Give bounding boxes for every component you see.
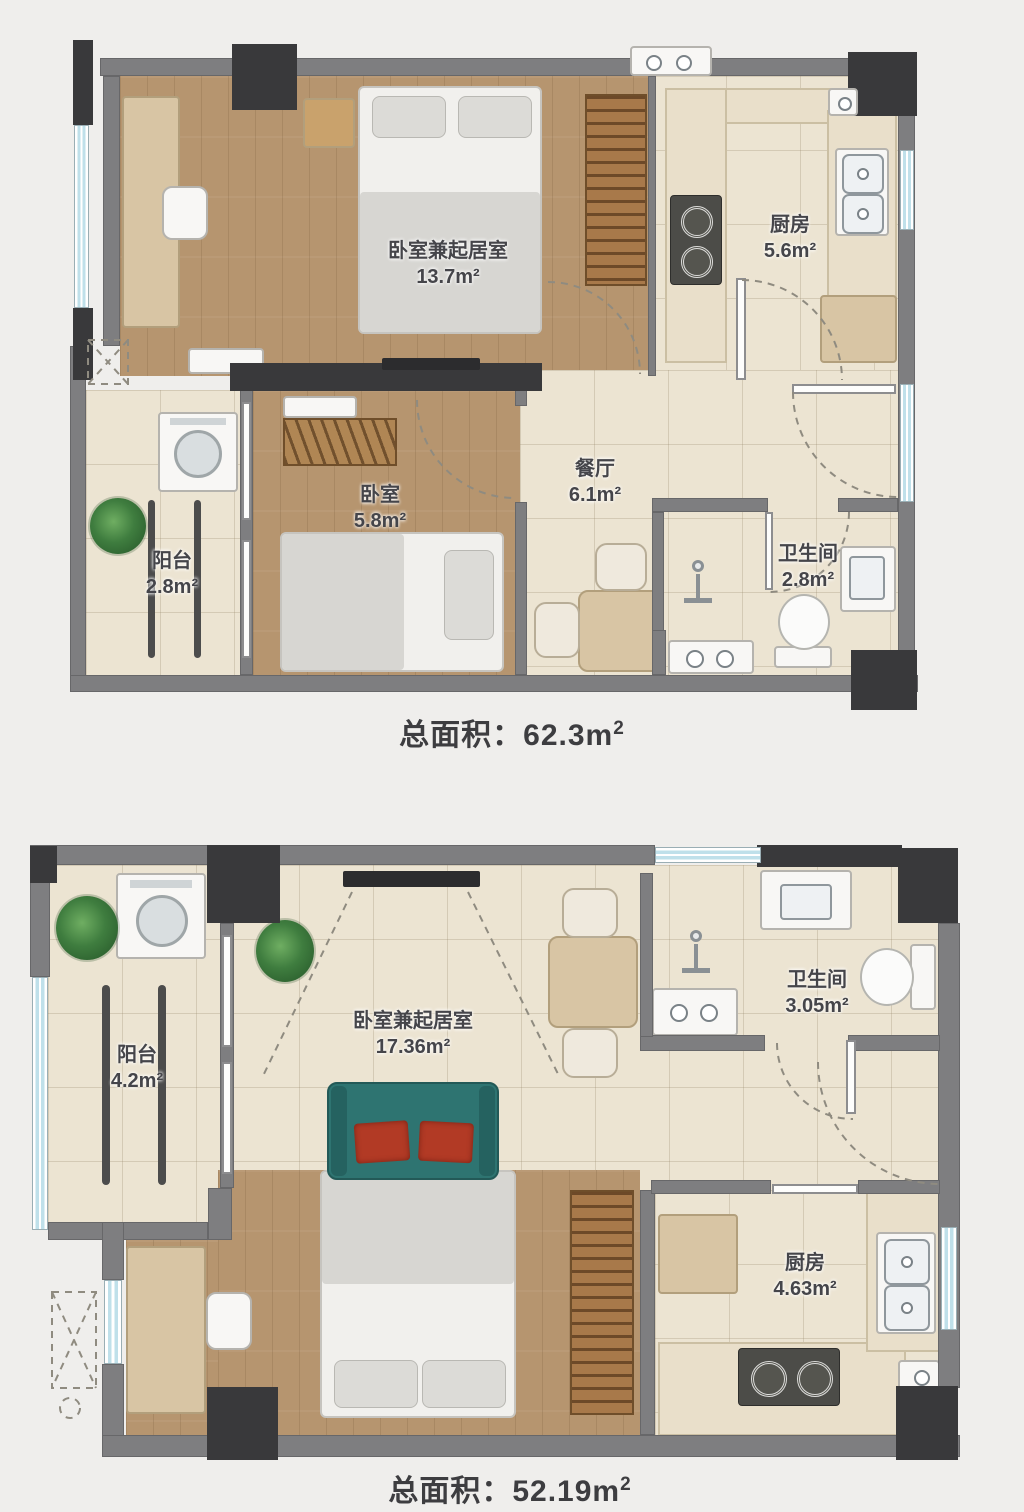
room-area: 6.1m² [545, 482, 645, 508]
p2-bath-vanity [652, 988, 738, 1036]
floorplan-page: 卧室兼起居室 13.7m² 厨房 5.6m² 餐厅 6.1m² 卧室 5.8m²… [0, 0, 1024, 1512]
p2-sink-drain-2 [901, 1302, 913, 1314]
p1-sink-bowl-1 [842, 154, 884, 194]
room-area: 17.36m² [343, 1034, 483, 1060]
p1-dining-chair-left [534, 602, 580, 658]
total-sup: 2 [620, 1474, 632, 1495]
p1-shelf [283, 418, 397, 466]
p1-wall-vent-hole [838, 97, 852, 111]
room-area: 4.2m² [87, 1068, 187, 1094]
p1-wall-bedroom2-stub [515, 390, 527, 406]
room-name: 卫生间 [748, 541, 868, 567]
total-label: 总面积： [388, 1475, 512, 1508]
p2-drain-symbol [60, 1398, 80, 1418]
p2-bed [320, 1170, 516, 1418]
p1-window-right [900, 384, 914, 502]
p2-stove-burner-2 [797, 1361, 833, 1397]
p2-wall-left-mid-2 [102, 1364, 124, 1438]
p1-wall-left-lower [70, 346, 86, 676]
p2-bath-door-leaf [846, 1040, 856, 1114]
p1-washer-panel [170, 418, 226, 425]
p2-bath-sink [760, 870, 852, 930]
p2-plant-balcony [56, 896, 118, 960]
p1-ac-unit [283, 396, 357, 418]
p2-label-bathroom: 卫生间 3.05m² [762, 967, 872, 1019]
p2-washer-panel [130, 880, 192, 888]
p1-plant [90, 498, 146, 554]
room-name: 餐厅 [545, 456, 645, 482]
total-value: 62.3m [523, 719, 613, 752]
p2-bed-pillow-2 [422, 1360, 506, 1408]
p1-column-top [232, 44, 297, 110]
p1-label-kitchen: 厨房 5.6m² [735, 212, 845, 264]
room-name: 卧室兼起居室 [343, 1008, 483, 1034]
p2-window-left [32, 977, 48, 1230]
p1-total-area: 总面积：62.3m2 [312, 710, 712, 754]
p1-dining-chair-top [595, 543, 647, 591]
p1-kitchen-door-leaf [736, 278, 746, 380]
p2-column-top-mid [207, 845, 280, 923]
p1-vanity-knob-1 [686, 650, 704, 668]
room-name: 阳台 [122, 548, 222, 574]
p2-shower-stem [694, 944, 698, 970]
p1-bed-pillow-left [372, 96, 446, 138]
p1-wall-bedroom2 [515, 502, 527, 675]
p2-vanity-knob-1 [670, 1004, 688, 1022]
p1-window-left [74, 125, 89, 308]
p2-bed-pillow-1 [334, 1360, 418, 1408]
p2-window-right [941, 1227, 957, 1330]
p1-shower-head [692, 560, 704, 572]
p1-label-balcony: 阳台 2.8m² [122, 548, 222, 600]
p2-window-left-lower [104, 1280, 122, 1364]
p2-total-area: 总面积：52.19m2 [310, 1466, 710, 1510]
p2-wall-top-dark [757, 845, 902, 867]
p2-wall-vent-hole [914, 1370, 930, 1386]
p2-wall-left-mid-1 [102, 1222, 124, 1280]
p2-wall-bath-bottom-left [640, 1035, 765, 1051]
room-area: 3.05m² [762, 993, 872, 1019]
room-area: 13.7m² [368, 264, 528, 290]
p2-balcony-slider-2 [222, 1062, 232, 1174]
room-area: 5.8m² [330, 508, 430, 534]
p1-washer-drum [174, 430, 222, 478]
p2-column-top-right [898, 848, 958, 923]
p1-hood-vent-2 [676, 55, 692, 71]
p2-wall-kitchen-top-right [858, 1180, 940, 1194]
p1-label-bathroom: 卫生间 2.8m² [748, 541, 868, 593]
p1-single-bed [280, 532, 504, 672]
p1-wall-left-upper [103, 76, 120, 346]
p1-tv [382, 358, 480, 370]
p2-vanity-knob-2 [700, 1004, 718, 1022]
p1-wall-bottom [70, 675, 918, 692]
total-value: 52.19m [512, 1475, 620, 1508]
p1-hood-vent-1 [646, 55, 662, 71]
p2-sofa-arm-left [331, 1086, 347, 1176]
p1-single-bed-pillow [444, 550, 494, 640]
p1-double-bed [358, 86, 542, 334]
p2-wall-balcony-bottom [48, 1222, 208, 1240]
p1-wall-kitchen-divider [648, 76, 656, 376]
p2-stove-burner-1 [751, 1361, 787, 1397]
p2-plant-living [256, 920, 314, 982]
p2-column-bottom-mid [207, 1387, 278, 1460]
p2-wall-bath-bottom-right [848, 1035, 940, 1051]
p1-column-left-top [73, 40, 93, 125]
p1-stove-burner-1 [681, 206, 713, 238]
p1-wall-shower [652, 512, 664, 642]
p2-dining-table [548, 936, 638, 1028]
room-name: 阳台 [87, 1042, 187, 1068]
p1-balcony-slider-1 [242, 402, 251, 520]
room-name: 厨房 [755, 1250, 855, 1276]
p1-balcony-slider-2 [242, 540, 251, 658]
room-area: 2.8m² [122, 574, 222, 600]
p1-stove [670, 195, 722, 285]
p1-label-bedroom2: 卧室 5.8m² [330, 482, 430, 534]
p2-wall-kitchen-divider [640, 1190, 655, 1435]
p1-wall-top [100, 58, 900, 76]
p1-sink-drain-1 [857, 168, 869, 180]
p1-wall-bath-top-left [652, 498, 768, 512]
p2-sofa [327, 1082, 499, 1180]
p2-sofa-cushion-1 [354, 1120, 411, 1164]
p2-ac-outline [52, 1292, 96, 1388]
p1-shower-stem [696, 574, 700, 600]
p1-vanity-knob-2 [716, 650, 734, 668]
p2-window-top [655, 847, 761, 863]
p2-dining-chair-top [562, 888, 618, 938]
p1-window-kitchen [900, 150, 914, 230]
p1-stove-burner-2 [681, 246, 713, 278]
p2-wall-shower [640, 873, 653, 1037]
p1-shower-valve [684, 598, 712, 603]
p1-column-left-mid [73, 308, 93, 380]
p2-bath-sink-basin [780, 884, 832, 920]
p1-column-bottom-right [851, 650, 917, 710]
p1-kitchen-cabinet [820, 295, 897, 363]
p2-entry-door-leaf [772, 1184, 858, 1194]
room-name: 厨房 [735, 212, 845, 238]
p2-desk [126, 1246, 206, 1414]
p2-column-top-left [30, 846, 57, 883]
p1-wall-vent [828, 88, 858, 116]
p2-sofa-cushion-2 [418, 1121, 474, 1164]
p1-dining-table [578, 590, 662, 672]
p1-label-bedroom-living: 卧室兼起居室 13.7m² [368, 238, 528, 290]
p1-sink-bowl-2 [842, 194, 884, 234]
p1-range-hood [630, 46, 712, 76]
p2-dining-chair-bottom [562, 1028, 618, 1078]
p2-washer-drum [136, 895, 188, 947]
p1-washing-machine [158, 412, 238, 492]
p2-kitchen-sink [876, 1232, 936, 1334]
p2-wardrobe [570, 1190, 634, 1415]
p2-fridge [658, 1214, 738, 1294]
p2-label-bedroom-living: 卧室兼起居室 17.36m² [343, 1008, 483, 1060]
room-area: 4.63m² [755, 1276, 855, 1302]
p2-label-kitchen: 厨房 4.63m² [755, 1250, 855, 1302]
room-area: 5.6m² [735, 238, 845, 264]
p1-bed-pillow-right [458, 96, 532, 138]
room-name: 卧室兼起居室 [368, 238, 528, 264]
p2-label-balcony: 阳台 4.2m² [87, 1042, 187, 1094]
p1-bath-vanity [668, 640, 754, 674]
p1-desk-chair [162, 186, 208, 240]
p1-wall-shower-stub [652, 630, 666, 675]
p2-sink-drain-1 [901, 1256, 913, 1268]
p2-washing-machine [116, 873, 206, 959]
p2-shower-head [690, 930, 702, 942]
p2-bed-blanket [322, 1172, 514, 1284]
total-label: 总面积： [399, 719, 523, 752]
p2-column-bottom-right [896, 1386, 958, 1460]
p1-wardrobe [585, 94, 647, 286]
p1-single-bed-blanket [282, 534, 404, 670]
p2-desk-chair [206, 1292, 252, 1350]
p2-wall-divider-stub [208, 1188, 232, 1240]
p1-column-top-right [848, 52, 917, 116]
p2-sink-bowl-1 [884, 1239, 930, 1285]
p2-wall-kitchen-top-left [651, 1180, 771, 1194]
p1-entry-door-leaf [792, 384, 896, 394]
p2-stove [738, 1348, 840, 1406]
room-name: 卫生间 [762, 967, 872, 993]
p1-sink-drain-2 [857, 208, 869, 220]
p2-sofa-arm-right [479, 1086, 495, 1176]
p2-shower-valve [682, 968, 710, 973]
p2-balcony-slider-1 [222, 935, 232, 1047]
p1-label-dining: 餐厅 6.1m² [545, 456, 645, 508]
p1-nightstand [303, 98, 355, 148]
p1-wall-bath-top-right [838, 498, 898, 512]
room-name: 卧室 [330, 482, 430, 508]
room-area: 2.8m² [748, 567, 868, 593]
p2-sink-bowl-2 [884, 1285, 930, 1331]
total-sup: 2 [613, 718, 625, 739]
p1-toilet-bowl [778, 594, 830, 650]
p2-tv [343, 871, 480, 887]
p2-wall-top-left [30, 845, 655, 865]
